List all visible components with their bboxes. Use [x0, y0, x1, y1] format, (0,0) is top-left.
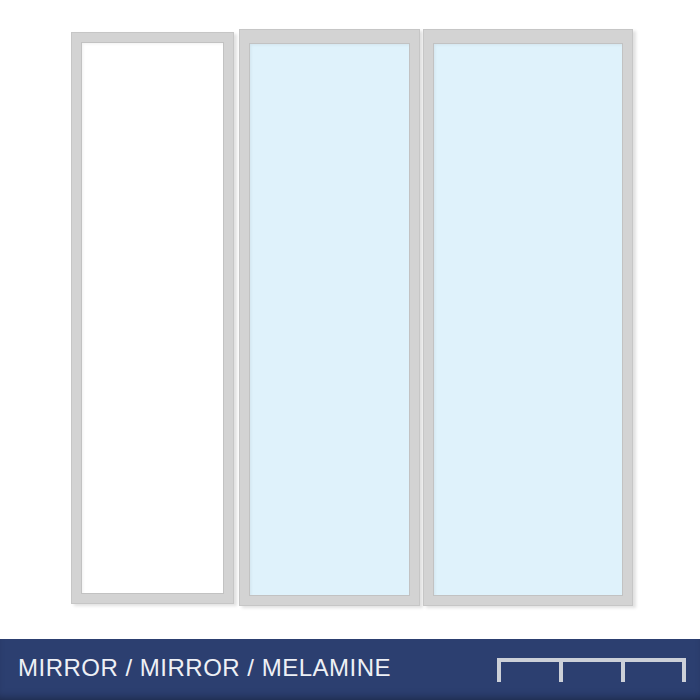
- configuration-label: MIRROR / MIRROR / MELAMINE: [18, 654, 391, 682]
- door-panel-2-pane: [249, 43, 410, 596]
- door-panel-1-pane: [81, 42, 224, 594]
- door-panel-1: [71, 32, 234, 604]
- door-panel-3-pane: [433, 43, 623, 596]
- triple-track-profile-icon: [497, 658, 686, 682]
- door-panel-2: [239, 29, 420, 606]
- caption-bar: MIRROR / MIRROR / MELAMINE: [0, 639, 700, 700]
- door-panel-3: [423, 29, 633, 606]
- door-configuration-preview: MIRROR / MIRROR / MELAMINE: [0, 0, 700, 700]
